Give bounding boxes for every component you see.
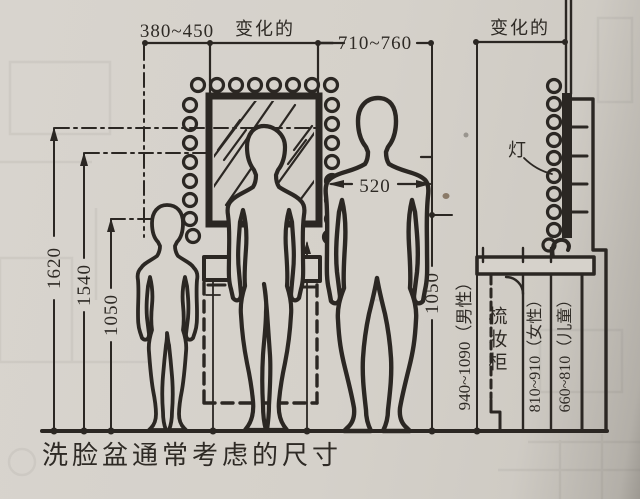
dim-520: 520 — [359, 176, 391, 197]
left-height-dimensions: 1620 1540 1050 — [44, 127, 122, 431]
paper-speck — [443, 193, 450, 199]
dim-380-450: 380~450 — [140, 21, 214, 42]
label-vanity-cabinet: 梳妆柜 — [486, 306, 508, 375]
mirror-profile — [562, 93, 572, 238]
dim-1540: 1540 — [74, 264, 95, 306]
label-variable-right: 变化的 — [490, 18, 550, 38]
washbasin-dimension-diagram: 380~450 变化的 710~760 变化的 1620 1540 1050 — [0, 0, 640, 499]
paper-speck-small — [464, 133, 469, 138]
dim-counter-male: 940~1090（男性） — [455, 274, 474, 411]
counter-side-view: 940~1090（男性） 梳妆柜 810~910（女性） 660~810（儿童） — [455, 43, 594, 431]
scanned-book-page: 380~450 变化的 710~760 变化的 1620 1540 1050 — [0, 0, 640, 499]
man-figure — [326, 98, 429, 431]
figure-caption: 洗脸盆通常考虑的尺寸 — [42, 441, 342, 470]
dim-counter-child: 660~810（儿童） — [555, 292, 574, 413]
dim-1620: 1620 — [44, 247, 65, 289]
dim-710-760: 710~760 — [338, 33, 412, 54]
label-lamp: 灯 — [508, 140, 528, 160]
label-variable-left: 变化的 — [235, 19, 295, 39]
cabinet-door-swing-arc — [506, 277, 523, 294]
washbasin-left — [204, 257, 229, 280]
side-view-bulbs — [543, 80, 561, 252]
dim-1050-right: 1050 — [422, 272, 443, 314]
bracket-ticks — [572, 127, 587, 212]
dim-counter-female: 810~910（女性） — [525, 292, 544, 413]
dim-1050-left: 1050 — [101, 294, 122, 336]
